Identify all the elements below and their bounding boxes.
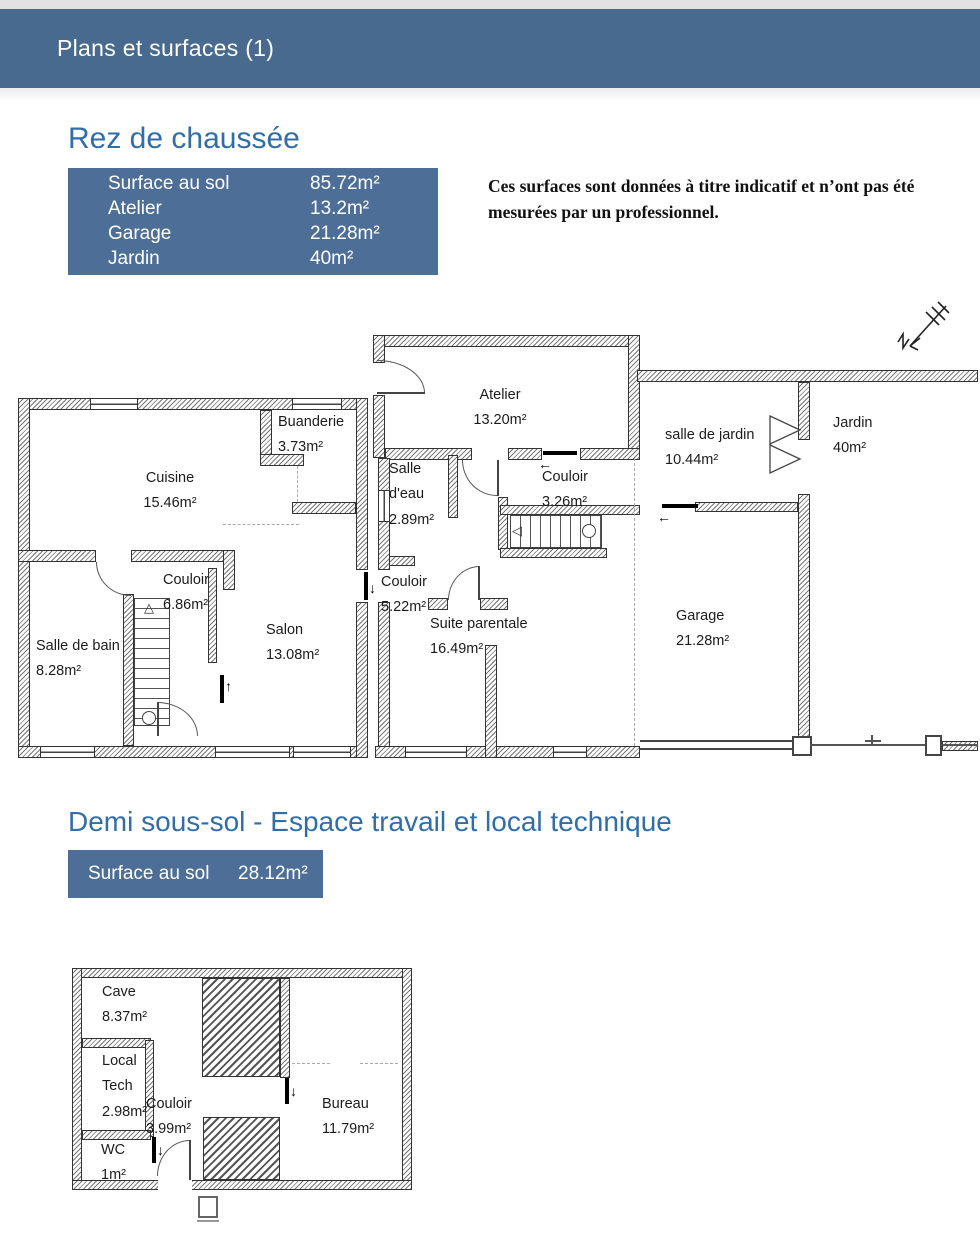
door-swing-arrow: ← [657,510,671,524]
surface-row: Garage 21.28m² [108,222,438,247]
door-leaf [364,572,368,600]
door-swing-arc [377,360,425,393]
wall-segment [628,335,640,460]
wall-segment [18,550,96,562]
surface-value: 13.2m² [310,198,438,220]
window [293,746,351,758]
fence-post [792,736,812,756]
wall-segment [448,455,458,518]
garage-door [640,740,792,750]
plan-element [926,312,939,325]
surface-label: Atelier [108,198,310,220]
wall-segment [356,602,368,758]
wall-segment [72,968,82,1190]
stair-end-circle [582,524,596,538]
wall-segment [580,448,640,460]
porch-step-line [197,1220,219,1223]
room-area: 2.89m² [389,508,445,533]
rdc-surface-table: Surface au sol 85.72m² Atelier 13.2m² Ga… [68,168,438,275]
wall-segment [375,335,640,347]
door-swing-arc [96,562,131,596]
wall-segment [131,550,231,562]
open-boundary-line [223,524,299,525]
door-swing-arc [448,566,480,600]
room-label-couloir-haut: Couloir3.26m² [542,465,612,516]
window [292,398,342,410]
rdc-section-title: Rez de chaussée [68,122,300,156]
plan-element [898,334,909,348]
window [553,746,587,758]
room-area: 8.37m² [102,1005,172,1030]
room-label-salle-deau: Salle d'eau2.89m² [389,457,445,533]
room-label-atelier: Atelier13.20m² [440,383,560,434]
wall-segment [942,741,978,751]
room-label-salon: Salon13.08m² [266,618,356,669]
door-leaf-line [478,566,480,600]
top-strip [0,0,980,9]
room-area: 16.49m² [430,637,570,662]
north-arrow-icon [888,298,960,360]
room-area: 8.28m² [36,659,154,684]
soussol-surface-table: Surface au sol 28.12m² [68,850,323,898]
door-leaf-line [497,460,499,496]
room-area: 3.99m² [146,1117,218,1142]
room-area: 1m² [101,1163,151,1188]
room-label-suite-parentale: Suite parentale16.49m² [430,612,570,663]
porch-step [198,1196,218,1218]
room-area: 40m² [833,436,903,461]
room-label-couloir-gauche: Couloir6.86m² [163,568,233,619]
fence-line [810,744,978,746]
surface-row: Atelier 13.2m² [108,197,438,222]
wall-segment [72,968,412,978]
window [405,746,467,758]
door-leaf [543,451,577,455]
room-area: 15.46m² [110,491,230,516]
surface-label: Surface au sol [88,863,238,885]
door-swing-arc [462,460,497,496]
room-label-couloir-ss: Couloir3.99m² [146,1092,218,1143]
door-leaf [285,1078,289,1104]
surface-label: Surface au sol [108,173,310,195]
room-name: Salle d'eau [389,457,445,508]
room-label-cave: Cave8.37m² [102,980,172,1031]
door-leaf-line [189,1140,191,1180]
window [215,746,290,758]
window [90,398,138,410]
header-bar: Plans et surfaces (1) [0,9,980,88]
room-name: Atelier [440,383,560,408]
room-name: Salon [266,618,356,643]
open-boundary-line [634,458,635,746]
document-page: Plans et surfaces (1) Rez de chaussée Su… [0,0,980,1252]
wall-segment [373,335,385,363]
room-name: Suite parentale [430,612,570,637]
wall-segment [378,602,390,758]
wall-segment [798,494,810,746]
room-label-buanderie: Buanderie3.73m² [278,410,368,461]
room-label-garage: Garage21.28m² [676,604,766,655]
door-leaf [662,504,698,508]
plan-element [938,302,949,313]
plan-element [910,306,946,346]
door-swing-arrow: ↑ [225,679,232,693]
surface-value: 85.72m² [310,173,438,195]
door-leaf [220,675,224,703]
surface-label: Garage [108,223,310,245]
wall-segment [292,502,356,514]
wall-segment [280,978,290,1078]
stair-direction-arrow: ◁ [512,524,522,537]
room-name: Couloir [381,570,451,595]
page-title: Plans et surfaces (1) [57,35,274,62]
room-name: Bureau [322,1092,417,1117]
room-name: Cave [102,980,172,1005]
room-label-jardin: Jardin40m² [833,411,903,462]
surface-row: Jardin 40m² [108,247,438,272]
open-boundary-line [360,1063,398,1064]
room-area: 10.44m² [665,448,783,473]
header-shadow-strip [0,88,980,102]
room-name: Salle de bain [36,634,154,659]
room-area: 21.28m² [676,629,766,654]
rdc-floorplan: △ ◁ ↓ ↑ ← ← [10,298,978,772]
plan-element [898,302,949,350]
door-leaf-line [157,702,159,736]
room-name: Buanderie [278,410,368,435]
door-opening [158,1180,192,1190]
fence-line [865,740,881,742]
surface-value: 28.12m² [238,863,308,885]
door-leaf-line [377,392,425,394]
wall-segment [373,395,385,458]
door-swing-arrow: ↓ [369,581,376,595]
wall-segment [82,1038,151,1048]
room-label-salle-de-jardin: salle de jardin10.44m² [665,423,783,474]
room-name: Cuisine [110,466,230,491]
wall-segment [18,398,30,758]
window [40,746,95,758]
room-area: 3.73m² [278,435,368,460]
room-area: 6.86m² [163,593,233,618]
room-name: Garage [676,604,766,629]
door-swing-arc [157,702,198,736]
room-name: Jardin [833,411,903,436]
open-boundary-line [297,466,298,502]
stair-end-circle [142,711,156,725]
room-area: 13.08m² [266,643,356,668]
room-name: WC [101,1138,151,1163]
room-name: salle de jardin [665,423,783,448]
fence-line [871,735,873,745]
room-label-cuisine: Cuisine15.46m² [110,466,230,517]
surface-row: Surface au sol 85.72m² [108,172,438,197]
room-name: Couloir [542,465,612,490]
surface-label: Jardin [108,248,310,270]
wall-segment [480,598,508,610]
stair-direction-arrow: △ [144,601,154,614]
room-area: 13.20m² [440,408,560,433]
room-name: Couloir [146,1092,218,1117]
room-label-salle-de-bain: Salle de bain8.28m² [36,634,154,685]
surfaces-disclaimer-note: Ces surfaces sont données à titre indica… [488,173,948,226]
solid-hatch-block [202,978,280,1077]
fence-post [925,735,942,756]
wall-segment [402,968,412,1190]
wall-segment [500,548,607,558]
room-label-wc: WC1m² [101,1138,151,1189]
soussol-section-title: Demi sous-sol - Espace travail et local … [68,806,672,838]
open-boundary-line [292,1063,330,1064]
door-swing-arrow: ↓ [290,1084,297,1098]
room-label-bureau: Bureau11.79m² [322,1092,417,1143]
room-area: 11.79m² [322,1117,417,1142]
room-area: 3.26m² [542,490,612,515]
surface-value: 40m² [310,248,438,270]
surface-value: 21.28m² [310,223,438,245]
room-name: Couloir [163,568,233,593]
soussol-floorplan: ↓ ↓ Cave8.37m² Local Tech2.98m² Couloir3… [70,962,430,1230]
wall-segment [695,502,798,512]
wall-segment [637,370,978,382]
wall-segment [508,448,542,460]
